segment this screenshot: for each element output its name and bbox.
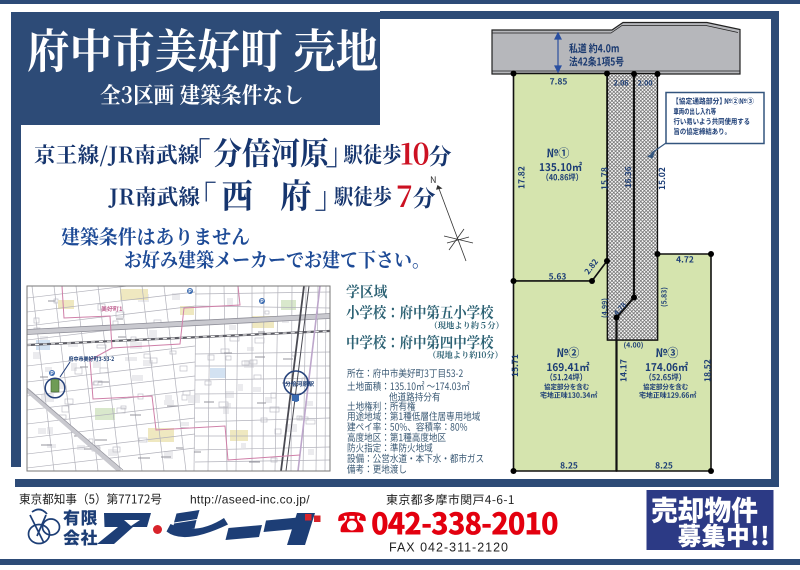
svg-text:http://aseed-inc.co.jp/: http://aseed-inc.co.jp/ bbox=[190, 493, 310, 507]
svg-text:FAX 042-311-2120: FAX 042-311-2120 bbox=[389, 541, 509, 555]
